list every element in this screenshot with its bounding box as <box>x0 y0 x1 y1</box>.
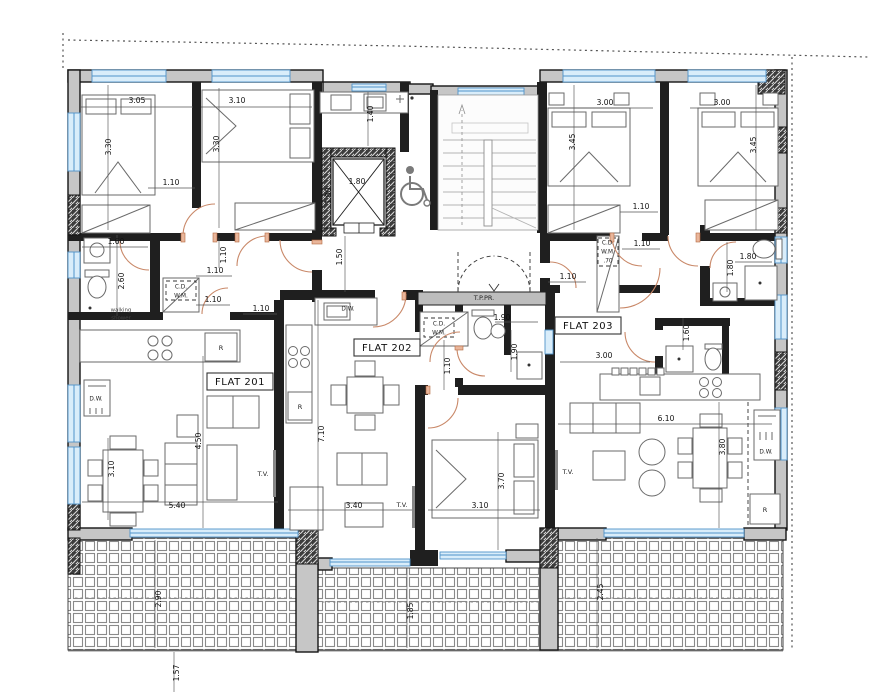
floor-plan-drawing: 3.05 3.30 3.10 3.30 1.40 1.80 1.80 3.00 … <box>0 0 869 694</box>
dim-label: 3.30 <box>104 138 113 155</box>
fridge-label: R <box>763 506 768 514</box>
dim-label: 3.10 <box>472 501 489 510</box>
dim-label: 3.80 <box>718 438 727 455</box>
dim-label: 1.80 <box>726 259 735 276</box>
bed-symbol <box>82 95 155 195</box>
dim-label: 1.10 <box>205 295 222 304</box>
dim-label: 1.57 <box>172 664 181 681</box>
closet-wm-label: W.M. <box>601 250 615 256</box>
dining-table-symbol <box>88 436 158 526</box>
dim-label: 1.40 <box>366 105 375 122</box>
tppr-label: T.P.PR. <box>473 294 495 302</box>
dim-label: 3.00 <box>714 98 731 107</box>
dim-label: 3.30 <box>212 135 221 152</box>
dim-label: 3.40 <box>346 501 363 510</box>
dim-label: 3.05 <box>129 96 146 105</box>
dim-label: 6.10 <box>658 414 675 423</box>
flat-201-label: FLAT 201 <box>215 377 265 388</box>
dishwasher-label: D.W. <box>759 450 772 456</box>
dim-label: 1.50 <box>335 248 344 265</box>
bathroom-fixtures <box>84 238 110 310</box>
tv-symbol <box>555 450 558 490</box>
dim-label: 1.90 <box>494 313 511 322</box>
dim-label: 3.00 <box>596 351 613 360</box>
dim-label: 3.70 <box>497 472 506 489</box>
dim-label: 3.45 <box>749 136 758 153</box>
floor-plan-page: 3.05 3.30 3.10 3.30 1.40 1.80 1.80 3.00 … <box>0 0 869 694</box>
sofa-symbol <box>570 403 665 496</box>
wheelchair-icon <box>401 166 430 206</box>
closet-wm-label: W.M. <box>432 331 446 337</box>
dishwasher-label: D.W. <box>89 397 102 403</box>
dim-label: 1.10 <box>253 304 270 313</box>
bed-symbol <box>548 93 630 186</box>
dim-label: 1.80 <box>349 177 366 186</box>
dim-label: 1.10 <box>634 239 651 248</box>
fridge-label: R <box>298 403 303 411</box>
sofa-symbol <box>165 396 259 505</box>
walking-shower-label: shower <box>111 316 131 322</box>
tv-symbol <box>412 486 415 528</box>
dim-label: 1.10 <box>163 178 180 187</box>
dim-label: 7.10 <box>317 425 326 442</box>
closet-cd-label: C.D. <box>433 322 445 328</box>
dim-label: 1.10 <box>207 266 224 275</box>
dim-label: 1.60 <box>682 324 691 341</box>
dim-label: 3.45 <box>568 133 577 150</box>
entrance-double-door <box>458 252 530 292</box>
dim-label: 4.50 <box>194 432 203 449</box>
dim-label: 3.10 <box>229 96 246 105</box>
closet-cd-label: C.D. <box>175 285 187 291</box>
dim-label: 1.85 <box>406 602 415 619</box>
dim-label: 1.10 <box>633 202 650 211</box>
flat-202-label: FLAT 202 <box>362 343 412 354</box>
dining-table-symbol <box>678 414 742 502</box>
dim-label: 5.40 <box>169 501 186 510</box>
dim-label: 3.10 <box>107 460 116 477</box>
staircase <box>438 95 538 230</box>
closet-width-label: .70 <box>603 259 613 265</box>
dishwasher-label: D.W. <box>341 307 354 313</box>
tv-label: T.V. <box>257 470 269 478</box>
dim-label: 1.60 <box>108 237 125 246</box>
tv-label: T.V. <box>396 501 408 509</box>
dim-label: 2.45 <box>596 583 605 600</box>
bed-symbol <box>698 93 778 186</box>
tv-label: T.V. <box>562 468 574 476</box>
dim-label: 1.10 <box>443 357 452 374</box>
dim-label: 2.60 <box>117 272 126 289</box>
dim-label: 1.80 <box>324 187 333 204</box>
sofa-symbol <box>290 453 387 530</box>
dim-label: 1.10 <box>219 246 228 263</box>
walking-shower-label: walking <box>111 308 132 314</box>
dim-label: 2.90 <box>154 590 163 607</box>
closet-wm-label: W.M. <box>174 294 188 300</box>
flat-203-label: FLAT 203 <box>563 321 613 332</box>
dim-label: 1.10 <box>560 272 577 281</box>
lift <box>333 159 384 233</box>
dim-label: 1.80 <box>740 252 757 261</box>
closet-cd-label: C.D. <box>602 241 614 247</box>
dim-label: 3.00 <box>597 98 614 107</box>
fridge-label: R <box>219 344 224 352</box>
dining-table-symbol <box>331 361 399 430</box>
tv-symbol <box>273 450 276 497</box>
dim-label: 1.90 <box>510 343 519 360</box>
flat-labels: FLAT 201 FLAT 202 FLAT 203 <box>207 317 621 390</box>
